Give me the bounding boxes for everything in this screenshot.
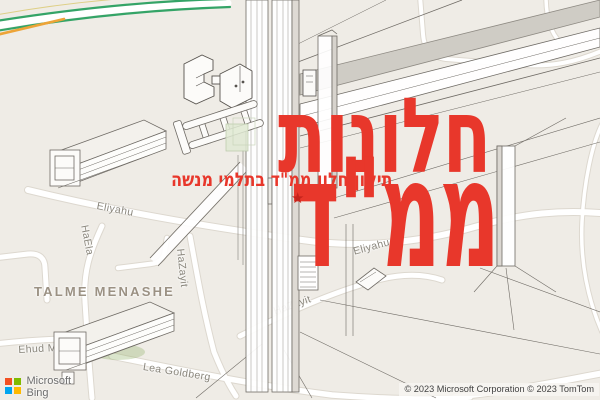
star-icon: ★ [291,189,304,207]
city-label: TALME MENASHE [34,284,175,299]
street-label-haela: HaEla [78,224,96,256]
street-label-ehud-manor: Ehud Manor [18,341,80,356]
traffic-flow-lines [0,0,230,36]
street-label-lea-goldberg: Lea Goldberg [142,361,211,384]
ms-square-blue [5,387,12,394]
ms-square-yellow [14,387,21,394]
ms-square-green [14,378,21,385]
copyright-attribution: © 2023 Microsoft Corporation © 2023 TomT… [399,383,599,396]
microsoft-wordmark: Microsoft [27,376,72,388]
street-label-eliyahu-left: Eliyahu [96,200,135,219]
map-canvas[interactable]: TALME MENASHE Eliyahu HaEla HaZayit HaZa… [0,0,600,400]
green-area [91,344,145,360]
bing-logo[interactable]: Microsoft Bing [5,376,71,399]
microsoft-logo-icon [5,378,21,394]
ms-square-red [5,378,12,385]
street-label-hazayit-vertical: HaZayit [174,248,190,288]
bing-wordmark: Bing [27,388,72,400]
overlay-title-main: ממ"ד [290,140,498,290]
